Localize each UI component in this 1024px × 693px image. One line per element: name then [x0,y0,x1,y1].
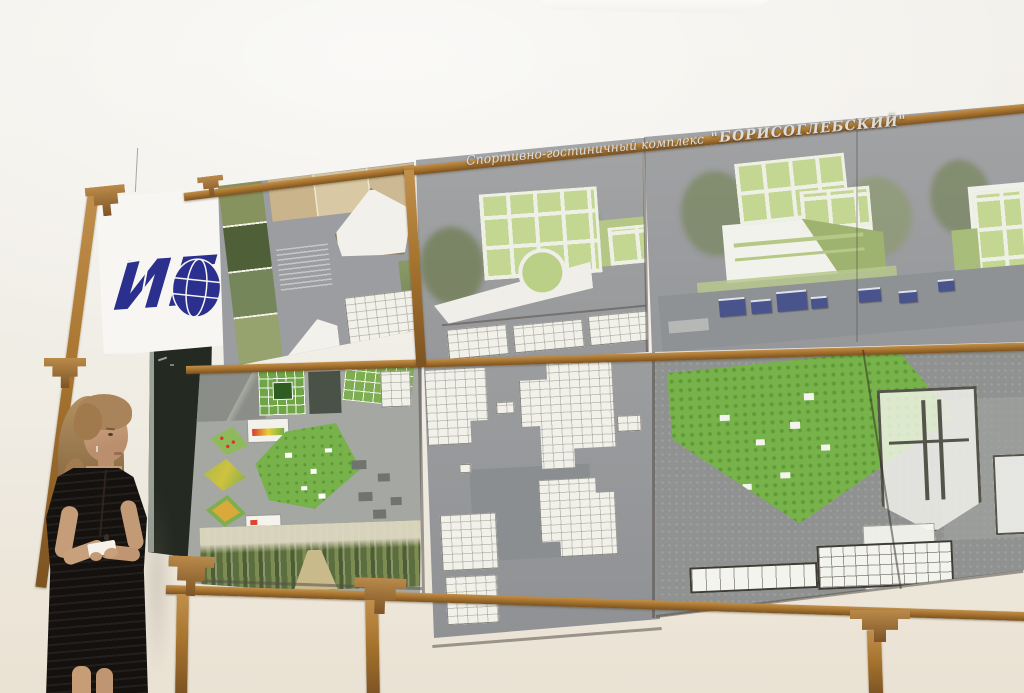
presenter-earring [96,446,98,452]
garden-grid-plan [258,368,306,416]
board-seam [856,118,858,342]
frame-corbel [850,610,910,642]
small-plan-fragment [459,464,471,474]
white-slab-building [668,318,709,333]
floor-plan-c [440,512,499,571]
annotation-text-block [276,243,333,293]
board-seam [652,352,655,618]
blue-building [751,299,772,315]
presenter-leg [96,668,113,693]
overlay-plan-right [993,454,1024,535]
chalk-mark [170,364,174,366]
plan-wall [889,438,969,444]
plan-wall [921,400,929,500]
blue-building [898,290,917,304]
blue-building [858,287,881,303]
blue-building [776,289,808,312]
hanging-wire [135,148,138,192]
board-bottom-left [186,362,430,600]
presenter-hand [90,552,102,561]
floor-plan-b [518,356,618,471]
blue-building [938,279,955,292]
small-plan-fragment [617,415,642,432]
floor-plan-a [424,367,490,446]
dark-panel-photo [308,371,341,414]
legend-gradient-bar [252,428,284,436]
building-section-left [689,562,818,594]
plan-strip [446,324,509,360]
board-top-center [416,138,648,365]
ceiling-edge [540,0,770,14]
presenter-leg [72,666,91,693]
plan-strip [512,319,584,354]
blue-building [811,296,828,309]
presenter-lips [114,452,122,455]
context-buildings [347,452,419,524]
presenter-eye [108,433,113,436]
logo-banner: ИГ [94,186,240,356]
garden-center-court [272,382,293,401]
plan-strip [588,311,651,347]
board-top-left [218,162,420,372]
plan-wall [937,399,945,499]
blue-building [718,297,745,317]
photo-scene: ИГ [0,0,1024,693]
chalk-mark [158,357,167,362]
institute-logo: ИГ [107,226,232,338]
schedule-card [380,370,411,407]
section-wedge-drawing [273,317,342,368]
small-plan [344,290,419,346]
small-plan-fragment [496,401,515,414]
presenter [0,380,220,693]
